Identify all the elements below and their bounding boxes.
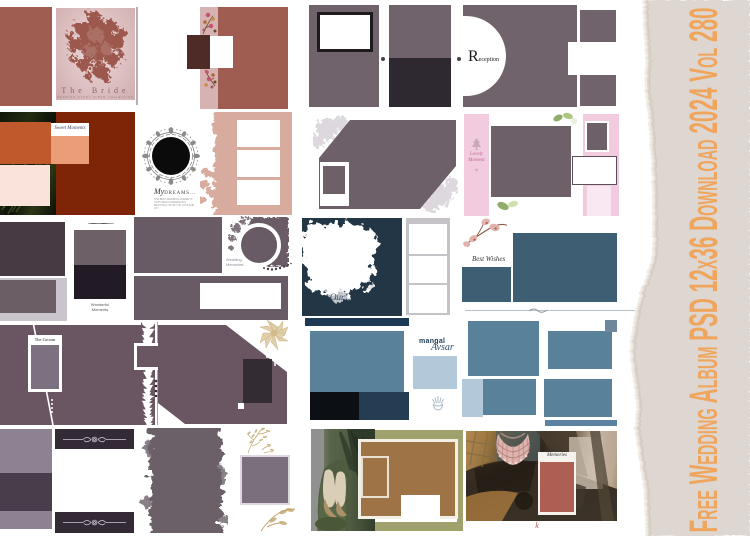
svg-text:Our...: Our... [330, 292, 350, 302]
